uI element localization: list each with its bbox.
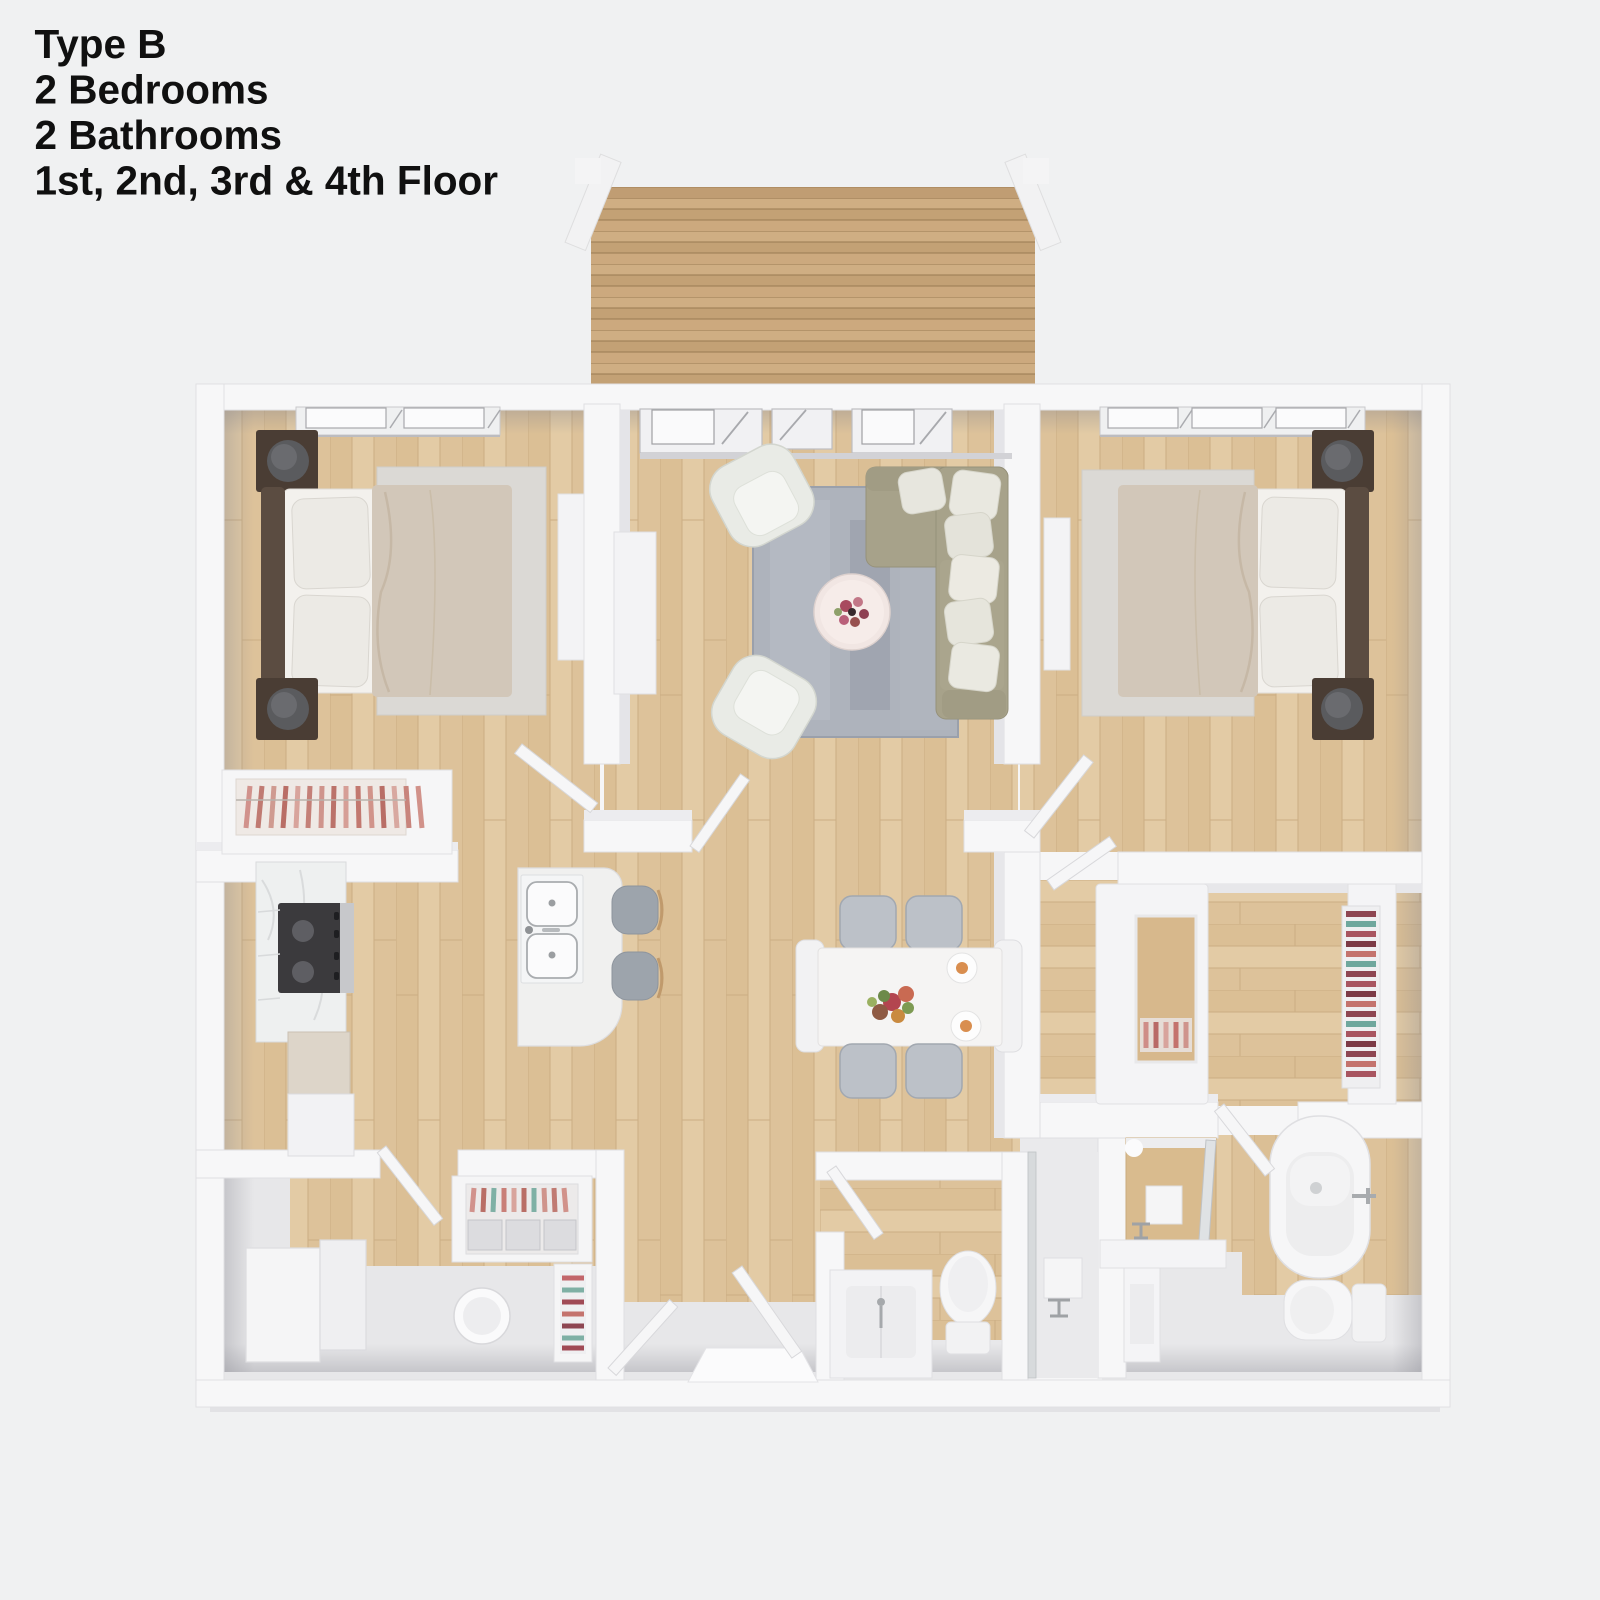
svg-text:2 Bathrooms: 2 Bathrooms <box>35 112 283 158</box>
svg-text:1st, 2nd, 3rd & 4th Floor: 1st, 2nd, 3rd & 4th Floor <box>35 158 499 204</box>
svg-text:2 Bedrooms: 2 Bedrooms <box>35 67 269 113</box>
svg-text:Type B: Type B <box>35 21 167 67</box>
